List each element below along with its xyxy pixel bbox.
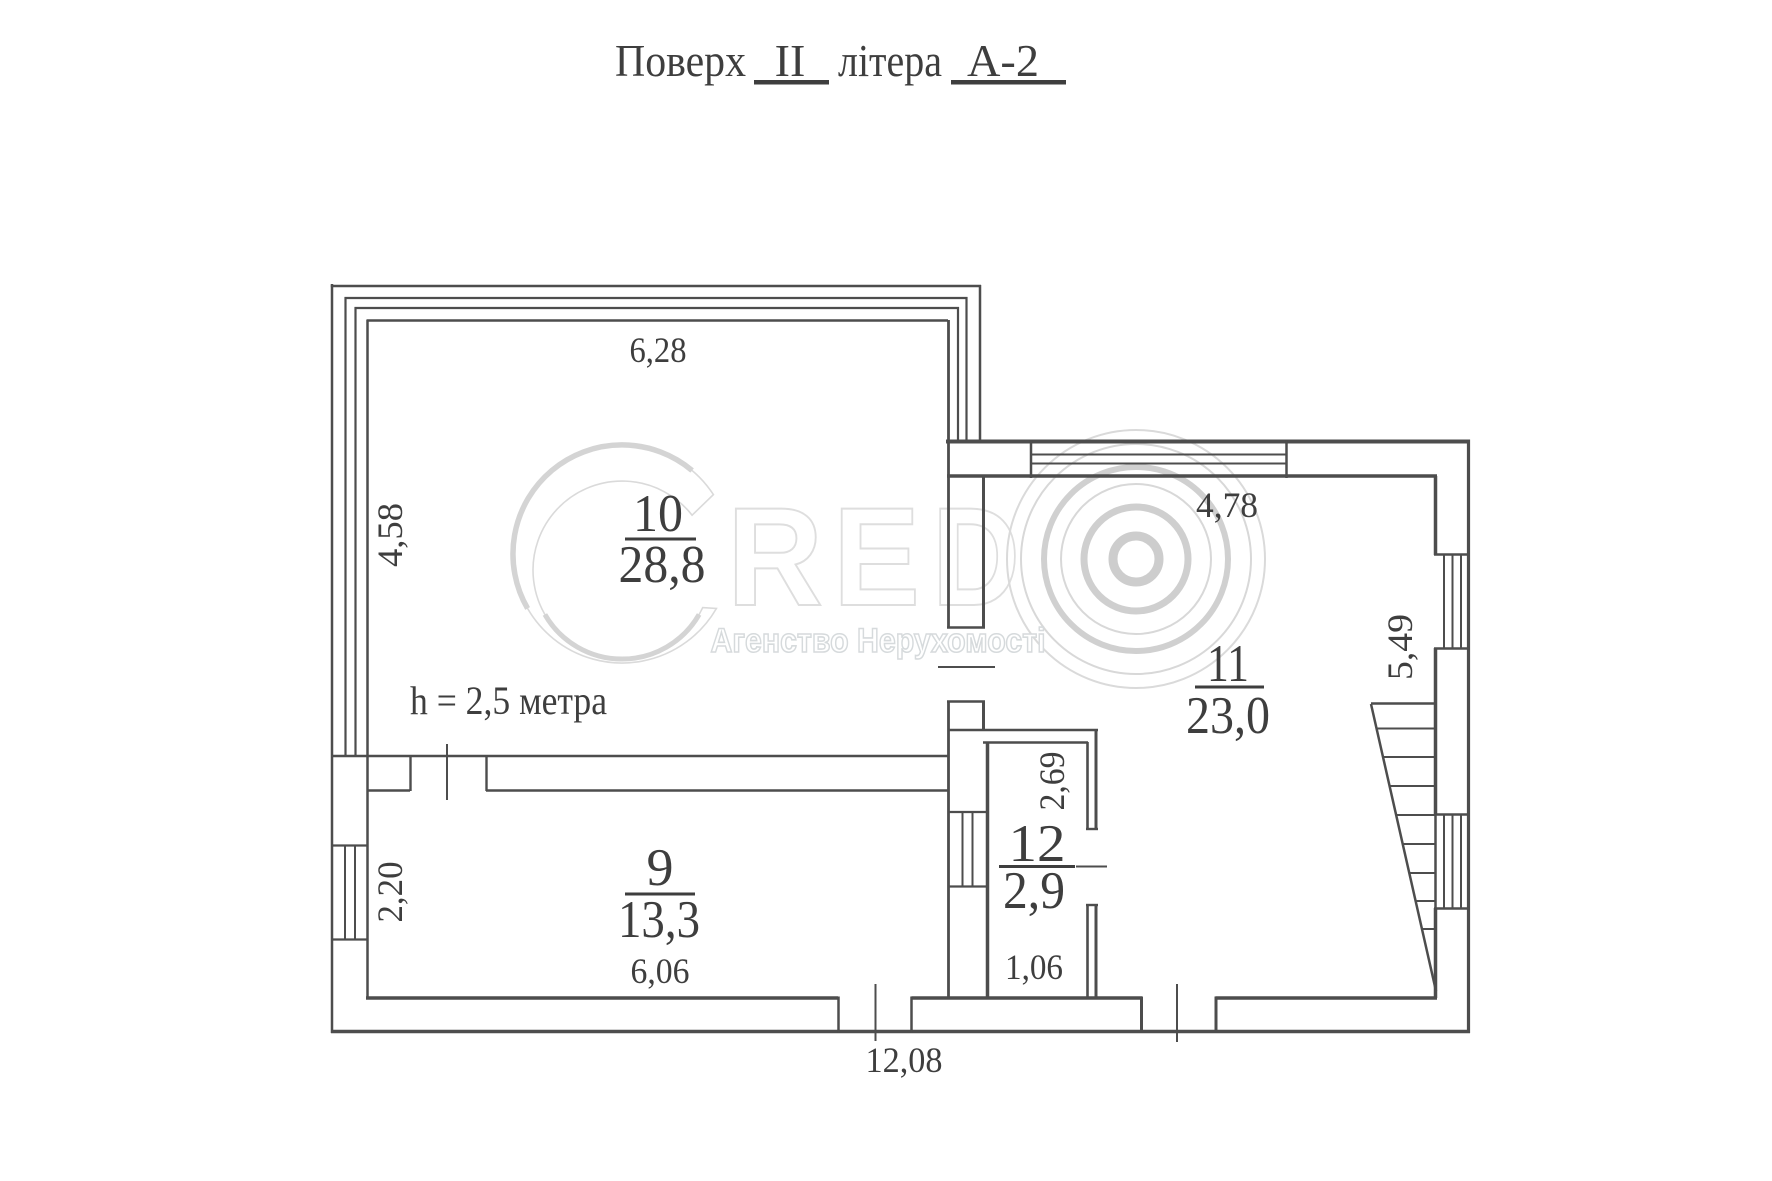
svg-text:23,0: 23,0 (1186, 687, 1270, 745)
svg-text:Поверх: Поверх (615, 35, 746, 86)
svg-text:Агенство Нерухомості: Агенство Нерухомості (711, 622, 1046, 660)
svg-text:2,69: 2,69 (1032, 752, 1072, 811)
svg-text:6,06: 6,06 (631, 951, 690, 991)
svg-text:28,8: 28,8 (619, 536, 706, 594)
svg-text:А-2: А-2 (967, 35, 1039, 86)
svg-text:9: 9 (647, 839, 674, 897)
svg-text:h = 2,5 метра: h = 2,5 метра (410, 678, 607, 723)
svg-text:1,06: 1,06 (1005, 947, 1063, 987)
svg-text:12,08: 12,08 (866, 1040, 943, 1080)
svg-text:2,20: 2,20 (370, 862, 410, 923)
svg-text:E: E (833, 478, 920, 635)
svg-text:13,3: 13,3 (618, 891, 700, 949)
svg-text:6,28: 6,28 (630, 330, 687, 370)
svg-text:літера: літера (838, 35, 942, 86)
svg-text:II: II (775, 35, 806, 86)
svg-text:4,78: 4,78 (1196, 485, 1258, 525)
svg-text:10: 10 (633, 485, 683, 543)
svg-text:R: R (727, 478, 823, 635)
svg-text:4,58: 4,58 (370, 503, 410, 567)
svg-text:11: 11 (1207, 635, 1249, 693)
svg-text:2,9: 2,9 (1003, 862, 1065, 920)
svg-text:5,49: 5,49 (1380, 614, 1420, 680)
